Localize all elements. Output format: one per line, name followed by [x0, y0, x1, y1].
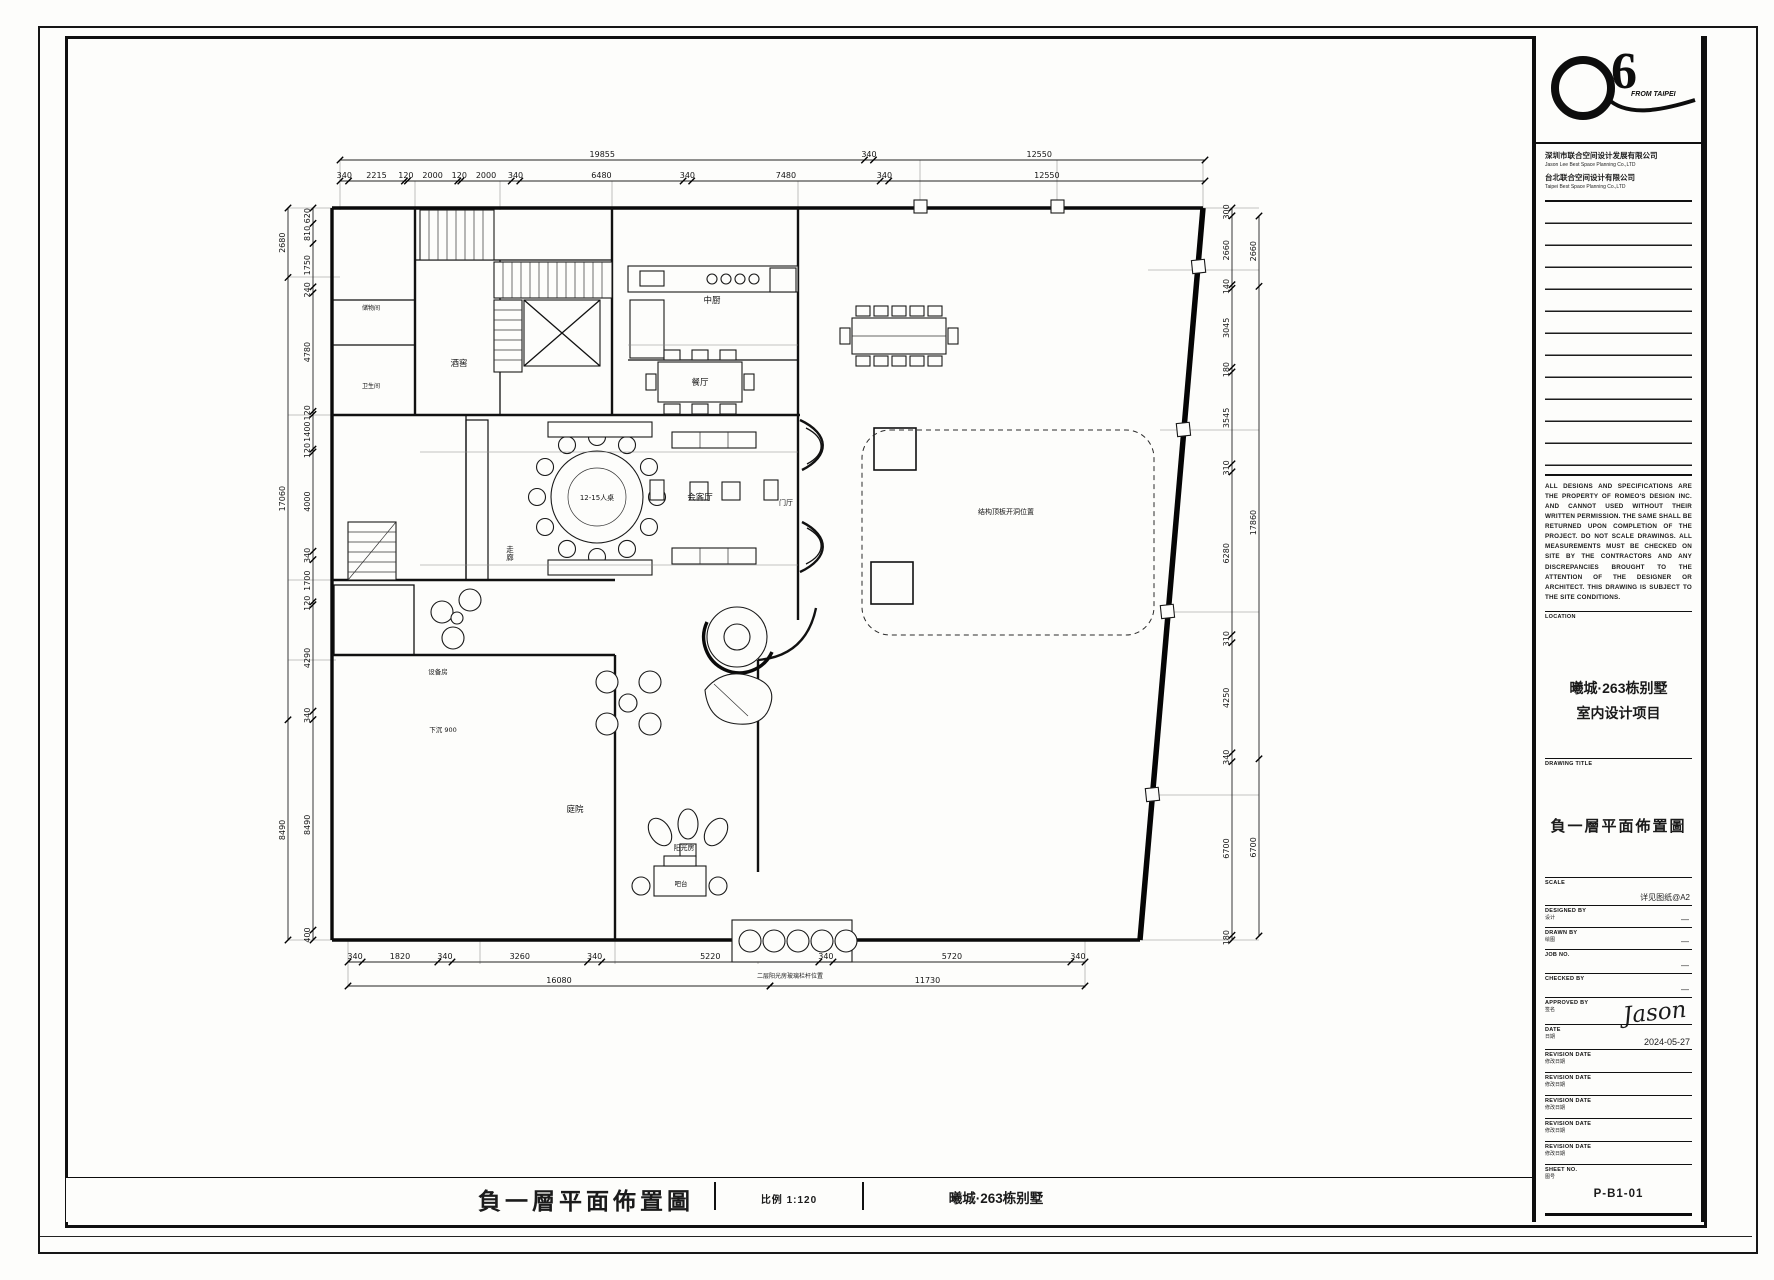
job-label: JOB NO. [1545, 950, 1692, 958]
company1-zh: 深圳市联合空间设计发展有限公司 [1545, 150, 1692, 161]
project-title: 曦城·263栋别墅 室内设计项目 [1545, 676, 1692, 726]
svg-text:340: 340 [861, 150, 876, 159]
round-bar [707, 607, 767, 667]
drawn-label: DRAWN BY [1545, 928, 1692, 936]
revision-row: REVISION DATE 修改日期 [1545, 1049, 1692, 1072]
svg-text:300: 300 [1222, 204, 1231, 219]
svg-text:620: 620 [303, 208, 312, 223]
svg-text:17860: 17860 [1249, 510, 1258, 535]
svg-text:12550: 12550 [1034, 171, 1059, 180]
svg-text:19855: 19855 [590, 150, 615, 159]
designed-value: — [1681, 915, 1688, 924]
title-block: 6 FROM TAIPEI 深圳市联合空间设计发展有限公司 Jason Lee … [1532, 36, 1704, 1222]
svg-text:5220: 5220 [700, 952, 720, 961]
location-label: LOCATION [1545, 612, 1692, 620]
checked-value: — [1681, 985, 1688, 994]
svg-text:4290: 4290 [303, 648, 312, 668]
svg-text:120: 120 [303, 443, 312, 458]
svg-text:6700: 6700 [1222, 838, 1231, 858]
svg-text:180: 180 [1222, 930, 1231, 945]
hatched-columns [871, 428, 916, 604]
room-label: 走廊 [506, 545, 514, 562]
company2-zh: 台北联合空间设计有限公司 [1545, 172, 1692, 183]
svg-text:340: 340 [347, 952, 362, 961]
svg-text:120: 120 [452, 171, 467, 180]
svg-text:180: 180 [1222, 362, 1231, 377]
sheet-no-value: P-B1-01 [1545, 1188, 1692, 1200]
room-label: 中厨 [703, 295, 721, 306]
svg-text:1750: 1750 [303, 255, 312, 275]
job-row: JOB NO. — [1545, 949, 1692, 973]
dim-chain-right-outer: 2660178606700 [1249, 213, 1262, 939]
svg-text:2000: 2000 [476, 171, 496, 180]
room-label: 卫生间 [362, 382, 380, 390]
sheet-no-label: SHEET NO. [1545, 1165, 1692, 1173]
lounge-chairs [431, 589, 481, 649]
svg-text:1400: 1400 [303, 421, 312, 441]
room-label: 门厅 [779, 498, 793, 507]
consultant-ruled-lines [1545, 200, 1692, 474]
window-bay [732, 920, 857, 962]
drawing-title-label: DRAWING TITLE [1545, 759, 1692, 767]
svg-text:1820: 1820 [390, 952, 410, 961]
svg-text:8490: 8490 [278, 820, 287, 840]
svg-text:4780: 4780 [303, 342, 312, 362]
company-block: 深圳市联合空间设计发展有限公司 Jason Lee Best Space Pla… [1536, 142, 1701, 200]
svg-text:120: 120 [303, 596, 312, 611]
bottom-title-bar: 負一層平面佈置圖 比例 1:120 曦城·263栋别墅 [66, 1178, 1532, 1222]
room-label: 吧台 [675, 879, 688, 888]
svg-text:240: 240 [303, 282, 312, 297]
titlebar-separator [862, 1182, 864, 1210]
sheet-no-sub: 图号 [1545, 1173, 1692, 1180]
drawn-value: — [1681, 937, 1688, 946]
room-label: 12-15人桌 [580, 493, 614, 502]
svg-text:4000: 4000 [303, 491, 312, 511]
room-label: 庭院 [566, 804, 584, 815]
designed-row: DESIGNED BY 设计 — [1545, 905, 1692, 927]
svg-text:400: 400 [303, 927, 312, 942]
svg-text:8490: 8490 [303, 815, 312, 835]
room-label: 储物间 [362, 304, 380, 312]
checked-label: CHECKED BY [1545, 974, 1692, 982]
svg-text:140: 140 [1222, 279, 1231, 294]
svg-text:6480: 6480 [591, 171, 611, 180]
room-label: 设备房 [428, 667, 448, 676]
company1-en: Jason Lee Best Space Planning Co.,LTD [1545, 162, 1692, 168]
room-label: 酒窖 [450, 358, 467, 369]
dim-chain-top-detail: 3402215120200012020003406480340748034012… [337, 171, 1209, 184]
svg-text:340: 340 [1222, 750, 1231, 765]
date-row: DATE 日期 2024-05-27 [1545, 1024, 1692, 1049]
svg-text:11730: 11730 [915, 976, 940, 985]
svg-text:5720: 5720 [942, 952, 962, 961]
svg-text:310: 310 [1222, 631, 1231, 646]
checked-row: CHECKED BY — [1545, 973, 1692, 997]
svg-text:16080: 16080 [546, 976, 571, 985]
svg-text:340: 340 [303, 708, 312, 723]
svg-text:2660: 2660 [1222, 240, 1231, 260]
svg-text:2660: 2660 [1249, 241, 1258, 261]
disclaimer: ALL DESIGNS AND SPECIFICATIONS ARE THE P… [1545, 474, 1692, 611]
scale-label: SCALE [1545, 878, 1692, 886]
svg-text:340: 340 [337, 171, 352, 180]
svg-text:4250: 4250 [1222, 688, 1231, 708]
svg-text:3545: 3545 [1222, 408, 1231, 428]
freeform-chaise [705, 674, 772, 724]
drawing-title: 負一層平面佈置圖 [1545, 815, 1692, 836]
floor-plan: 1985534012550340221512020001202000340648… [0, 0, 1774, 1280]
dim-chain-bottom-overall-left: 16080 [345, 976, 773, 989]
logo-circle [1555, 60, 1611, 116]
svg-text:340: 340 [587, 952, 602, 961]
project-title-line2: 室内设计项目 [1545, 701, 1692, 726]
svg-text:2680: 2680 [278, 233, 287, 253]
svg-text:17060: 17060 [278, 486, 287, 511]
dim-chain-right-inner: 3002660140304518035453106280310425034067… [1222, 204, 1235, 945]
logo-tagline: FROM TAIPEI [1631, 91, 1677, 98]
drawn-sub: 绘图 [1545, 936, 1692, 943]
svg-text:310: 310 [1222, 460, 1231, 475]
drawn-row: DRAWN BY 绘图 — [1545, 927, 1692, 949]
walls [332, 208, 1203, 940]
svg-text:340: 340 [437, 952, 452, 961]
room-label: 阳光房 [674, 843, 695, 852]
stairs-top-left [420, 210, 494, 260]
kitchen [628, 266, 798, 358]
sheet-scale: 比例 1:120 [724, 1191, 854, 1206]
logo-graphic: 6 FROM TAIPEI [1545, 36, 1699, 140]
stairs-mid-left [348, 522, 396, 580]
sheet-no-row: SHEET NO. 图号 P-B1-01 [1545, 1164, 1692, 1207]
drawing-title-section: DRAWING TITLE 負一層平面佈置圖 [1545, 758, 1692, 877]
designed-label: DESIGNED BY [1545, 906, 1692, 914]
room-label: 下沉 900 [429, 726, 456, 734]
svg-text:340: 340 [680, 171, 695, 180]
approved-row: APPROVED BY 签名 Jason [1545, 997, 1692, 1024]
svg-text:340: 340 [508, 171, 523, 180]
svg-text:340: 340 [1070, 952, 1085, 961]
room-label: 餐厅 [691, 378, 709, 388]
svg-text:7480: 7480 [776, 171, 796, 180]
svg-text:1700: 1700 [303, 571, 312, 591]
armchair-cluster [596, 671, 661, 735]
svg-text:3045: 3045 [1222, 318, 1231, 338]
svg-text:340: 340 [877, 171, 892, 180]
sheet-project: 曦城·263栋别墅 [876, 1187, 1116, 1207]
job-value: — [1681, 961, 1688, 970]
svg-text:6700: 6700 [1249, 837, 1258, 857]
svg-text:120: 120 [303, 405, 312, 420]
dim-chain-left-inner: 6208101750240478012014001204000340170012… [303, 205, 316, 943]
scale-row: SCALE 详见图纸@A2 [1545, 877, 1692, 905]
project-title-line1: 曦城·263栋别墅 [1545, 676, 1692, 701]
svg-text:810: 810 [303, 226, 312, 241]
svg-text:3260: 3260 [510, 952, 530, 961]
scale-value: 详见图纸@A2 [1640, 892, 1690, 903]
date-value: 2024-05-27 [1644, 1037, 1690, 1047]
glazed-boundary-wall [914, 200, 1206, 940]
sheet-title: 負一層平面佈置圖 [396, 1182, 776, 1216]
revision-row: REVISION DATE 修改日期 [1545, 1141, 1692, 1164]
long-table [840, 306, 958, 366]
room-label: 结构顶板开洞位置 [978, 507, 1034, 516]
svg-text:2000: 2000 [422, 171, 442, 180]
svg-text:340: 340 [818, 952, 833, 961]
dim-chain-left-outer: 2680170608490 [278, 205, 291, 943]
svg-text:12550: 12550 [1027, 150, 1052, 159]
drawing-sheet: 1985534012550340221512020001202000340648… [0, 0, 1774, 1280]
date-label: DATE [1545, 1025, 1692, 1033]
room-label: 二层阳光房玻璃栏杆位置 [757, 972, 823, 980]
revision-row: REVISION DATE 修改日期 [1545, 1095, 1692, 1118]
svg-text:340: 340 [303, 548, 312, 563]
dim-chain-bottom-detail: 3401820340326034052203405720340 [345, 952, 1088, 965]
location-section: LOCATION 曦城·263栋别墅 室内设计项目 [1545, 611, 1692, 758]
dim-chain-top-overall: 1985534012550 [337, 150, 1208, 163]
room-label: 会客厅 [687, 492, 713, 503]
company2-en: Taipei Best Space Planning Co.,LTD [1545, 184, 1692, 190]
titlebar-separator [714, 1182, 716, 1210]
elevator [524, 300, 600, 366]
svg-text:6280: 6280 [1222, 543, 1231, 563]
logo: 6 FROM TAIPEI [1536, 36, 1701, 142]
revision-row: REVISION DATE 修改日期 [1545, 1072, 1692, 1095]
svg-text:120: 120 [398, 171, 413, 180]
svg-text:2215: 2215 [366, 171, 386, 180]
title-block-end-rule [1545, 1213, 1692, 1216]
designed-sub: 设计 [1545, 914, 1692, 921]
revision-row: REVISION DATE 修改日期 [1545, 1118, 1692, 1141]
